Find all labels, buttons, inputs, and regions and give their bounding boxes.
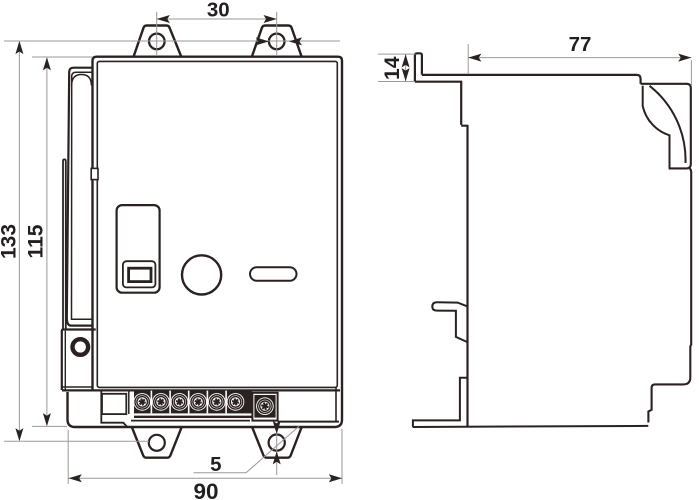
- svg-text:133: 133: [0, 224, 20, 259]
- svg-text:5: 5: [210, 453, 221, 476]
- svg-text:77: 77: [569, 33, 592, 56]
- svg-text:115: 115: [24, 224, 47, 258]
- svg-text:14: 14: [381, 56, 404, 80]
- svg-text:90: 90: [193, 479, 218, 500]
- svg-text:30: 30: [207, 0, 230, 22]
